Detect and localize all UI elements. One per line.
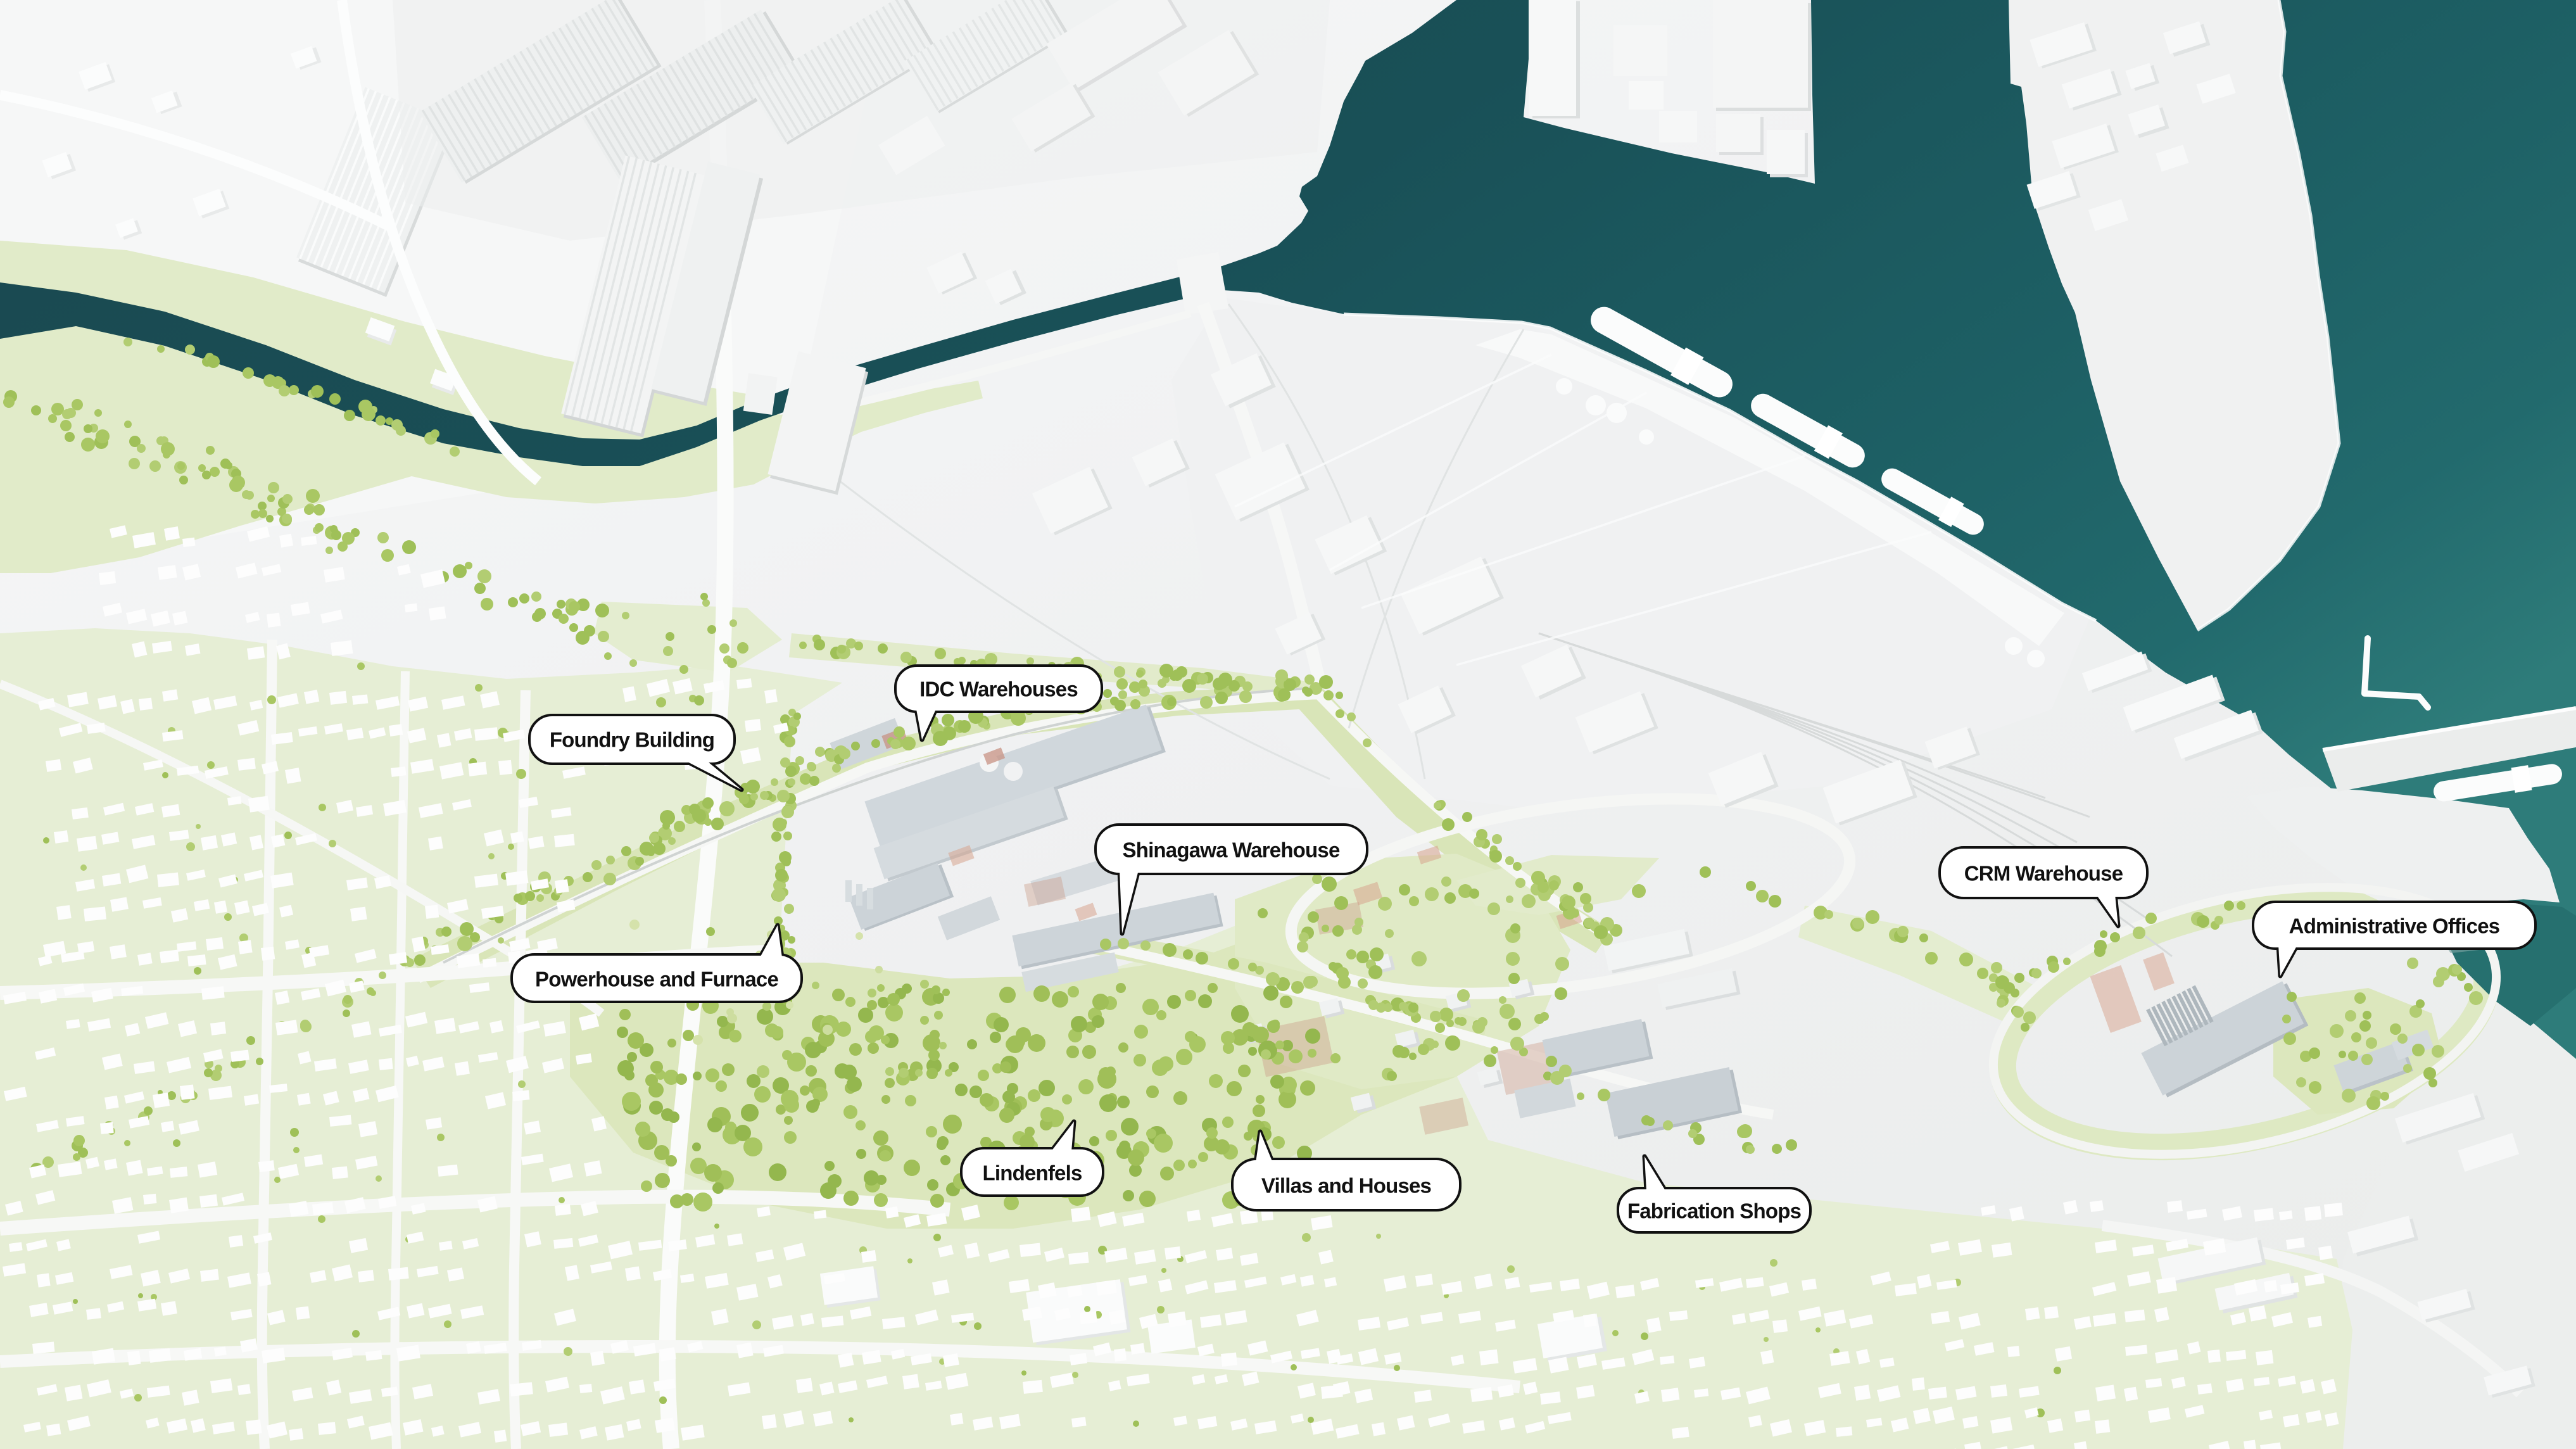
svg-text:Lindenfels: Lindenfels: [982, 1161, 1082, 1185]
svg-text:Shinagawa Warehouse: Shinagawa Warehouse: [1123, 838, 1340, 862]
svg-text:IDC Warehouses: IDC Warehouses: [919, 678, 1078, 701]
svg-text:Fabrication Shops: Fabrication Shops: [1627, 1199, 1801, 1223]
svg-text:Administrative Offices: Administrative Offices: [2289, 914, 2500, 938]
svg-text:CRM Warehouse: CRM Warehouse: [1964, 862, 2123, 885]
svg-text:Foundry Building: Foundry Building: [550, 728, 714, 752]
svg-text:Villas and Houses: Villas and Houses: [1261, 1174, 1431, 1198]
svg-text:Powerhouse and Furnace: Powerhouse and Furnace: [535, 968, 778, 991]
